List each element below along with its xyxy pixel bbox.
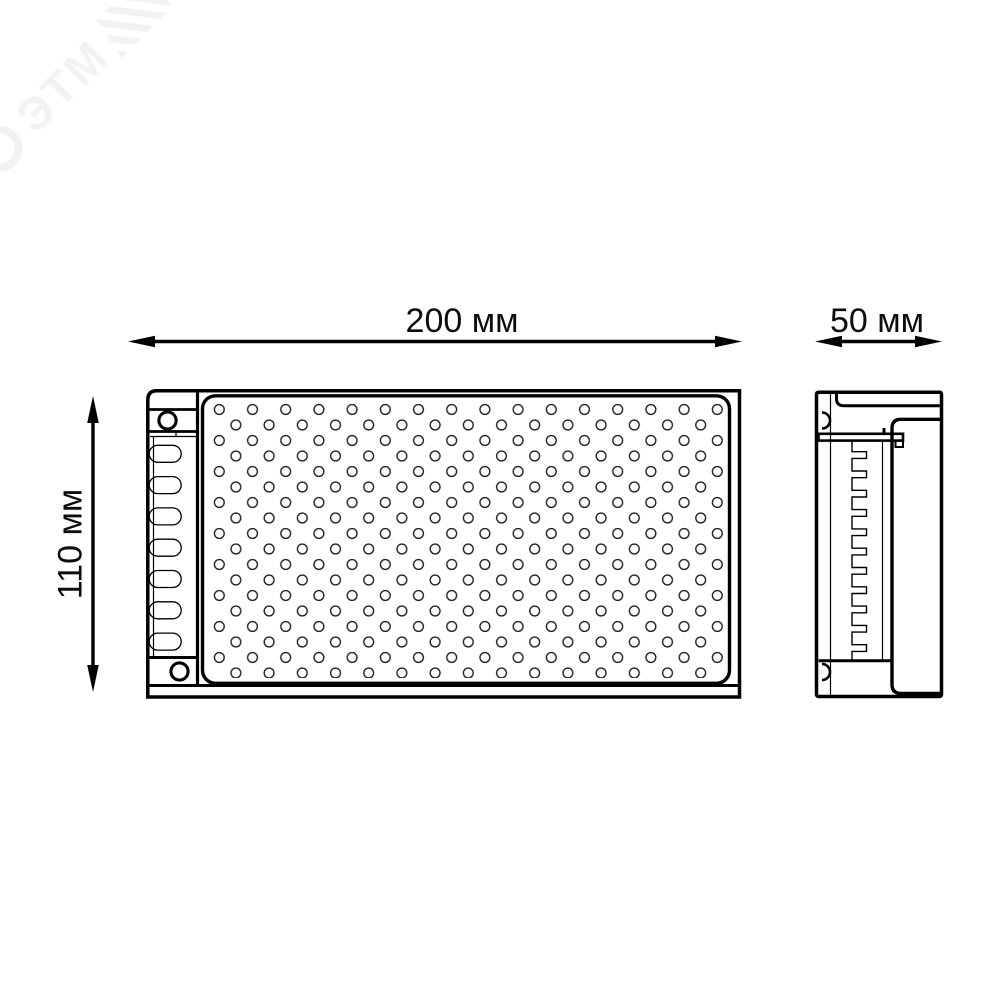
dimension-depth: 50 мм	[815, 302, 942, 347]
side-outline	[817, 392, 942, 696]
dimension-width: 200 мм	[128, 302, 742, 347]
arrowhead-right-icon	[715, 336, 742, 348]
dimension-width-label: 200 мм	[406, 302, 519, 340]
arrowhead-left-icon	[128, 336, 155, 348]
mounting-hole-bottom	[171, 663, 188, 680]
arrowhead-down-icon	[87, 665, 99, 692]
dimension-height: 110 мм	[52, 396, 99, 692]
side-mounting-hole-top	[822, 413, 830, 429]
dimension-depth-label: 50 мм	[830, 302, 924, 340]
front-view	[148, 391, 740, 697]
side-mounting-hole-bottom	[822, 664, 830, 680]
side-bracket-tab	[896, 441, 904, 447]
side-view	[817, 392, 942, 696]
side-top-cap-line	[837, 392, 940, 406]
technical-drawing: 200 мм 50 мм 110 мм	[0, 0, 1000, 1000]
mounting-hole-top	[159, 412, 176, 429]
terminal-serration	[852, 441, 867, 661]
dimension-height-label: 110 мм	[52, 489, 90, 599]
drawing-canvas: ЭТМ 200 мм 50 мм 110 м	[0, 0, 1000, 1000]
side-cover-panel	[892, 419, 941, 693]
arrowhead-up-icon	[87, 396, 99, 423]
perforation-pattern	[209, 400, 726, 678]
